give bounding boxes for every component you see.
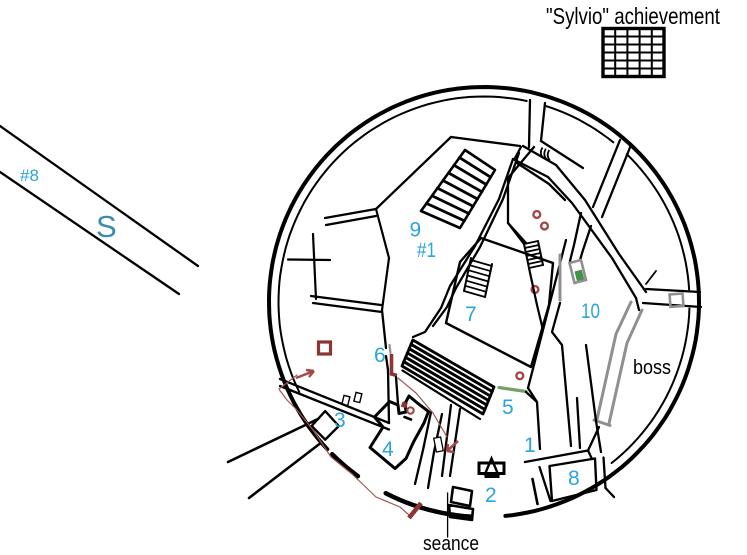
svg-text:2: 2	[485, 484, 497, 507]
svg-text:1: 1	[524, 434, 536, 457]
svg-text:S: S	[96, 209, 117, 244]
svg-text:10: 10	[581, 300, 600, 323]
svg-text:7: 7	[465, 303, 477, 326]
svg-text:8: 8	[568, 467, 580, 490]
svg-text:#8: #8	[20, 166, 39, 185]
svg-text:6: 6	[374, 344, 386, 367]
svg-text:"Sylvio" achievement: "Sylvio" achievement	[546, 3, 720, 29]
svg-text:seance: seance	[423, 533, 479, 555]
svg-text:4: 4	[382, 438, 394, 461]
svg-text:5: 5	[502, 396, 514, 419]
svg-text:boss: boss	[633, 357, 671, 379]
svg-text:#1: #1	[417, 239, 436, 262]
